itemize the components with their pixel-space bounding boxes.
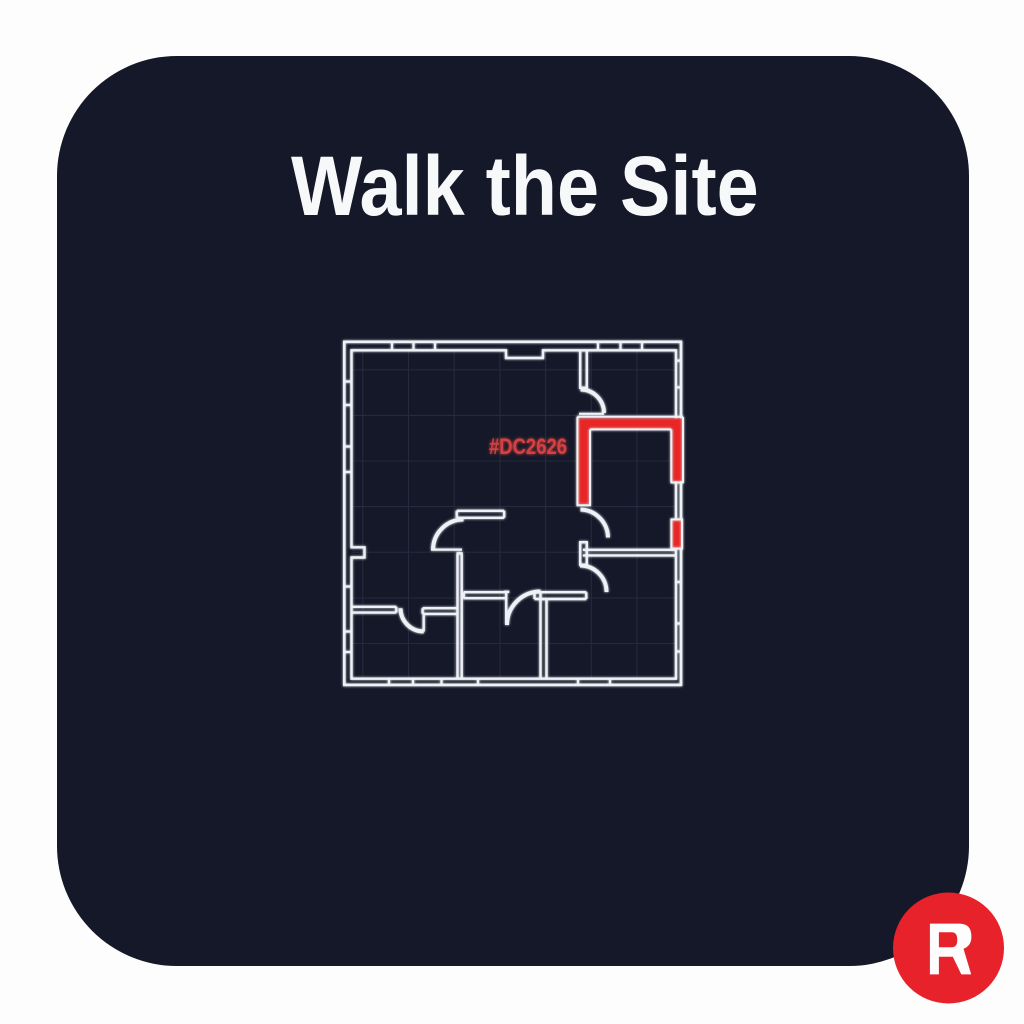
svg-text:#DC2626: #DC2626	[489, 434, 567, 459]
